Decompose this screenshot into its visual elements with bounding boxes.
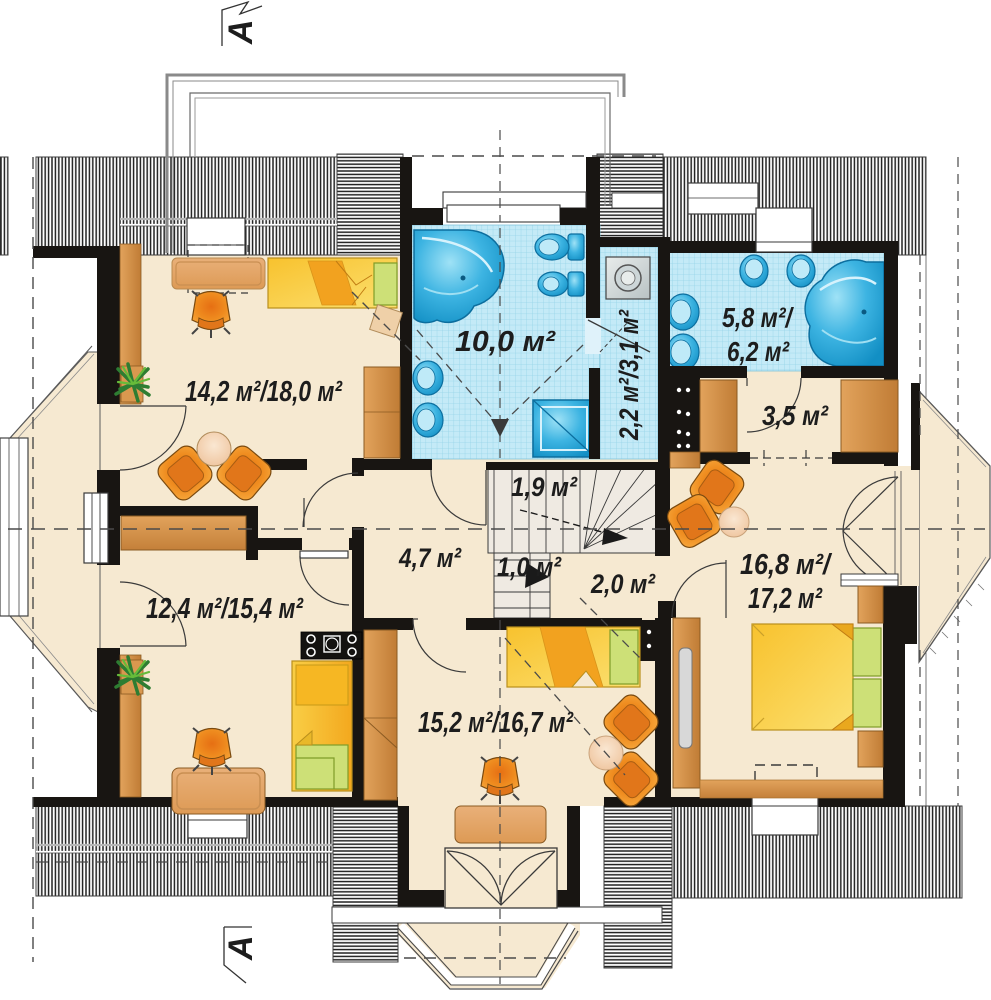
svg-text:1,0 м²: 1,0 м² — [497, 552, 562, 582]
svg-text:4,7 м²: 4,7 м² — [398, 543, 462, 573]
svg-text:5,8 м²/: 5,8 м²/ — [722, 302, 795, 333]
svg-text:3,5 м²: 3,5 м² — [762, 400, 829, 431]
svg-text:1,9 м²: 1,9 м² — [511, 472, 578, 502]
svg-text:2,2 м²/3,1 м²: 2,2 м²/3,1 м² — [614, 309, 644, 441]
svg-text:16,8 м²/: 16,8 м²/ — [740, 549, 833, 581]
svg-text:14,2 м²/18,0 м²: 14,2 м²/18,0 м² — [185, 376, 343, 408]
svg-text:2,0 м²: 2,0 м² — [590, 569, 656, 599]
svg-text:12,4 м²/15,4 м²: 12,4 м²/15,4 м² — [146, 593, 304, 625]
svg-text:15,2 м²/16,7 м²: 15,2 м²/16,7 м² — [418, 707, 574, 739]
svg-text:17,2 м²: 17,2 м² — [748, 583, 823, 615]
svg-text:6,2 м²: 6,2 м² — [727, 336, 790, 367]
svg-text:10,0 м²: 10,0 м² — [455, 326, 556, 358]
svg-text:A: A — [222, 19, 260, 45]
svg-text:A: A — [222, 935, 260, 961]
